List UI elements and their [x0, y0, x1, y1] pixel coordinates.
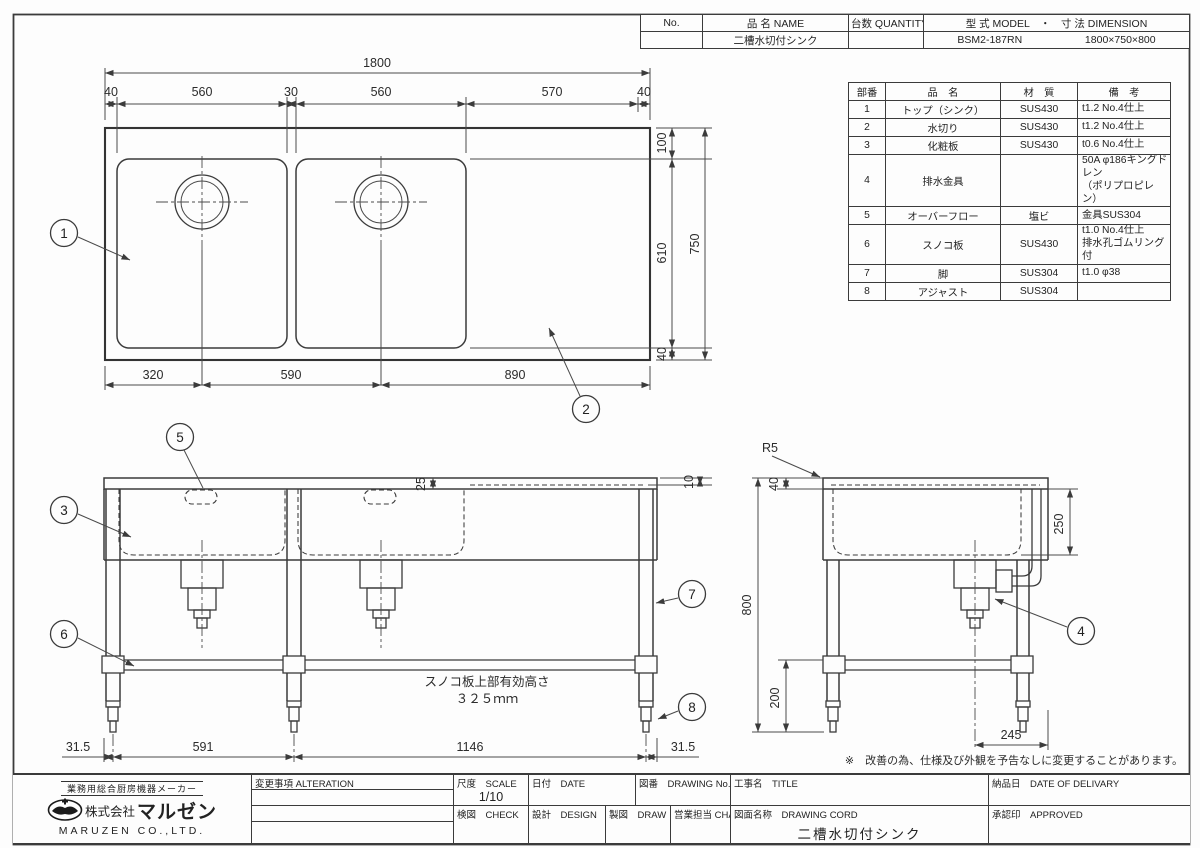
- design-label: 設計 DESIGN: [529, 806, 605, 822]
- svg-text:3: 3: [60, 503, 68, 518]
- delivery-label: 納品日 DATE OF DELIVARY: [989, 775, 1190, 791]
- dim-edge: 10: [682, 475, 696, 489]
- dim-right-overhang: 31.5: [671, 740, 695, 754]
- drawing-name-cell: 図面名称 DRAWING CORD 二槽水切付シンク: [730, 806, 988, 843]
- header-col-no: No.: [641, 15, 703, 32]
- dim-top-margin: 100: [655, 133, 669, 154]
- front-adjusters: [106, 701, 653, 732]
- svg-text:4: 4: [1077, 624, 1085, 639]
- drawing-name-label: 図面名称 DRAWING CORD: [731, 806, 988, 822]
- date-cell: 日付 DATE: [528, 775, 635, 805]
- dim-leg-span-1: 591: [193, 740, 214, 754]
- title-block-grid: 尺度 SCALE 1/10 日付 DATE 図番 DRAWING No. 工事名…: [453, 775, 1190, 843]
- alteration-label: 変更事項 ALTERATION: [252, 775, 453, 790]
- maker-logo-block: 業務用総合厨房機器メーカー 株式会社 マルゼン MARUZEN CO.,LTD.: [13, 775, 251, 843]
- company-name: マルゼン: [137, 797, 217, 824]
- dim-drainboard-width: 570: [542, 85, 563, 99]
- svg-text:1: 1: [60, 226, 68, 241]
- table-row: 8アジャストSUS304: [849, 283, 1171, 301]
- dim-divider: 30: [284, 85, 298, 99]
- snoko-note-line2: ３２５ｍｍ: [456, 692, 519, 706]
- dim-leg-span-2: 1146: [457, 740, 484, 754]
- header-name-value: 二槽水切付シンク: [703, 32, 849, 49]
- check-label: 検図 CHECK: [454, 806, 528, 822]
- alteration-row-empty: [252, 822, 453, 843]
- dim-bowl1-width: 560: [192, 85, 213, 99]
- dim-right-rim: 40: [637, 85, 651, 99]
- radius-label: R5: [762, 441, 778, 455]
- dim-overall-depth: 750: [688, 234, 702, 255]
- header-quantity-value: [849, 32, 924, 49]
- scale-label: 尺度 SCALE: [454, 775, 528, 791]
- table-row: 3化粧板SUS430t0.6 No.4仕上: [849, 137, 1171, 155]
- date-label: 日付 DATE: [529, 775, 635, 791]
- alteration-block: 変更事項 ALTERATION: [251, 775, 453, 843]
- header-no-value: [641, 32, 703, 49]
- charge-label: 営業担当 CHARGE: [671, 806, 730, 822]
- front-drain-1: [181, 540, 223, 648]
- parts-col-no: 部番: [849, 83, 886, 101]
- dim-overall-width: 1800: [363, 56, 391, 70]
- scale-value: 1/10: [454, 791, 528, 804]
- approved-cell: 承認印 APPROVED: [988, 806, 1190, 843]
- check-cell: 検図 CHECK: [453, 806, 528, 843]
- snoko-note-line1: スノコ板上部有効高さ: [424, 674, 549, 689]
- dim-left-rim: 40: [104, 85, 118, 99]
- charge-cell: 営業担当 CHARGE: [670, 806, 730, 843]
- parts-col-material: 材 質: [1001, 83, 1078, 101]
- parts-col-name: 品 名: [886, 83, 1001, 101]
- maker-tagline: 業務用総合厨房機器メーカー: [61, 781, 203, 796]
- side-view-drawing: R5 40 800 250 200 245 4: [740, 441, 1095, 750]
- svg-text:5: 5: [176, 430, 184, 445]
- drawing-no-label: 図番 DRAWING No.: [636, 775, 730, 791]
- table-row: 5オーバーフロー塩ビ金具SUS304: [849, 207, 1171, 225]
- dim-bowl-depth: 250: [1052, 514, 1066, 535]
- svg-text:8: 8: [688, 700, 696, 715]
- dim-bowl2-width: 560: [371, 85, 392, 99]
- dim-backsplash: 25: [414, 477, 428, 491]
- maruzen-logo-icon: [47, 797, 83, 824]
- drawing-name-value: 二槽水切付シンク: [731, 823, 988, 843]
- side-drain: [954, 540, 996, 750]
- approved-label: 承認印 APPROVED: [989, 806, 1190, 822]
- header-col-name: 品 名 NAME: [703, 15, 849, 32]
- balloon-8: 8: [658, 694, 706, 721]
- dim-rail-height: 40: [767, 477, 781, 491]
- svg-text:7: 7: [688, 587, 696, 602]
- dim-drain2-to-edge: 890: [505, 368, 526, 382]
- dim-overall-height: 800: [740, 595, 754, 616]
- table-row: 4排水金具50A φ186キングドレン （ポリプロピレン）: [849, 155, 1171, 207]
- alteration-row-empty: [252, 790, 453, 806]
- dim-drain1-pos: 320: [143, 368, 164, 382]
- company-prefix: 株式会社: [85, 801, 135, 820]
- table-row: 6スノコ板SUS430t1.0 No.4仕上 排水孔ゴムリング付: [849, 225, 1171, 265]
- header-col-quantity: 台数 QUANTITY: [849, 15, 924, 32]
- svg-text:2: 2: [582, 402, 590, 417]
- draw-label: 製図 DRAW: [606, 806, 670, 822]
- dim-leg-bottom: 200: [768, 688, 782, 709]
- company-name-en: MARUZEN CO.,LTD.: [59, 825, 205, 837]
- drawing-no-cell: 図番 DRAWING No.: [635, 775, 730, 805]
- scale-cell: 尺度 SCALE 1/10: [453, 775, 528, 805]
- title-block: 業務用総合厨房機器メーカー 株式会社 マルゼン MARUZEN CO.,LTD.…: [13, 773, 1190, 845]
- disclaimer-note: ※ 改善の為、仕様及び外観を予告なしに変更することがあります。: [845, 753, 1183, 767]
- delivery-cell: 納品日 DATE OF DELIVARY: [988, 775, 1190, 805]
- dim-bowl-depth-plan: 610: [655, 243, 669, 264]
- table-row: 2水切りSUS430t1.2 No.4仕上: [849, 119, 1171, 137]
- header-table: No. 品 名 NAME 台数 QUANTITY 型 式 MODEL ・ 寸 法…: [640, 14, 1190, 49]
- dim-drain-spacing: 590: [281, 368, 302, 382]
- front-view-drawing: 25 10 スノコ板上部有効高さ ３２５ｍｍ 31.5 591 1146 31.…: [51, 424, 713, 763]
- balloon-2: 2: [549, 328, 600, 423]
- top-view-drawing: 1800 40 560 30 560 570 40 100 610 40 750…: [51, 56, 713, 423]
- parts-col-note: 備 考: [1078, 83, 1171, 101]
- header-dimension-value: 1800×750×800: [1085, 34, 1156, 46]
- table-row: 7脚SUS304t1.0 φ38: [849, 265, 1171, 283]
- header-col-model-dimension: 型 式 MODEL ・ 寸 法 DIMENSION: [924, 15, 1190, 32]
- svg-text:6: 6: [60, 627, 68, 642]
- dim-left-overhang: 31.5: [66, 740, 90, 754]
- header-model-value: BSM2-187RN: [957, 34, 1022, 46]
- alteration-row-empty: [252, 806, 453, 822]
- title-label: 工事名 TITLE: [731, 775, 988, 791]
- dim-drain-offset: 245: [1001, 728, 1022, 742]
- balloon-4: 4: [995, 599, 1095, 645]
- front-drain-2: [360, 540, 402, 648]
- table-row: 1トップ（シンク）SUS430t1.2 No.4仕上: [849, 101, 1171, 119]
- title-cell: 工事名 TITLE: [730, 775, 988, 805]
- design-cell: 設計 DESIGN: [528, 806, 605, 843]
- parts-table: 部番 品 名 材 質 備 考 1トップ（シンク）SUS430t1.2 No.4仕…: [848, 82, 1171, 301]
- balloon-7: 7: [656, 581, 706, 608]
- balloon-1: 1: [51, 220, 131, 261]
- dim-bottom-margin: 40: [655, 347, 669, 361]
- draw-cell: 製図 DRAW: [605, 806, 670, 843]
- drawing-sheet: 1800 40 560 30 560 570 40 100 610 40 750…: [0, 0, 1200, 848]
